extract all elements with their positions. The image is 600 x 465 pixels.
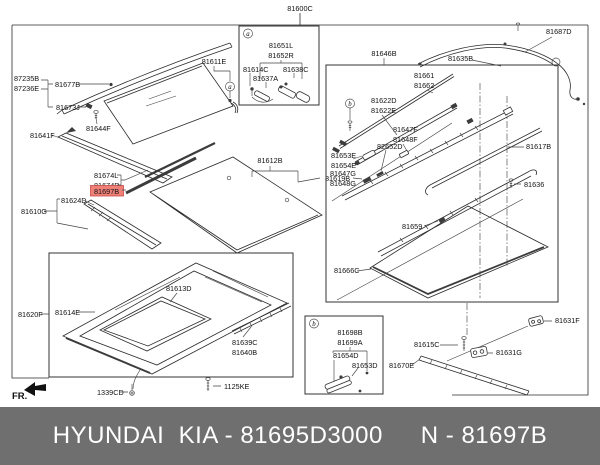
part-label-81670E[interactable]: 81670E — [389, 361, 414, 370]
part-label-81677B[interactable]: 81677B — [55, 80, 80, 89]
parts-catalog-page: 81600C a 81651L 81652R 81614C 81637A 816… — [0, 0, 600, 465]
part-label-81647G[interactable]: 81647G — [330, 169, 356, 178]
part-label-81631G[interactable]: 81631G — [496, 348, 522, 357]
part-label-81653D[interactable]: 81653D — [352, 361, 378, 370]
sunshade-glass-panel — [150, 157, 322, 253]
deflector — [84, 200, 161, 249]
part-label-81613D[interactable]: 81613D — [166, 284, 192, 293]
part-label-81674L[interactable]: 81674L — [94, 171, 118, 180]
part-label-81624D[interactable]: 81624D — [61, 196, 87, 205]
part-label-81647F[interactable]: 81647F — [393, 125, 418, 134]
part-label-81620F[interactable]: 81620F — [18, 310, 43, 319]
part-label-81639C[interactable]: 81639C — [232, 338, 258, 347]
part-label-81600C[interactable]: 81600C — [287, 4, 313, 13]
part-label-81614C[interactable]: 81614C — [243, 65, 269, 74]
inset-marker-b-ref: b — [348, 101, 352, 108]
part-label-81654D[interactable]: 81654D — [333, 351, 359, 360]
inset-box-a: a 81651L 81652R 81614C 81637A 81638C — [239, 26, 319, 105]
part-label-81638C[interactable]: 81638C — [283, 65, 309, 74]
sunshade-blind-panel — [370, 206, 548, 298]
part-label-81651L[interactable]: 81651L — [269, 41, 293, 50]
part-label-81652R[interactable]: 81652R — [268, 51, 294, 60]
part-label-81653E[interactable]: 81653E — [331, 151, 356, 160]
part-label-81699A[interactable]: 81699A — [337, 338, 362, 347]
part-label-81648G[interactable]: 81648G — [330, 179, 356, 188]
fr-label: FR. — [12, 391, 27, 402]
part-label-81673J[interactable]: 81673J — [56, 103, 80, 112]
part-label-81617B[interactable]: 81617B — [526, 142, 551, 151]
part-label-81615C[interactable]: 81615C — [414, 340, 440, 349]
part-label-81631F[interactable]: 81631F — [555, 316, 580, 325]
front-direction: FR. — [12, 382, 46, 402]
rail-strip-81670E — [419, 356, 529, 395]
part-label-81622D[interactable]: 81622D — [371, 96, 397, 105]
part-label-81697B[interactable]: 81697B — [94, 187, 119, 196]
part-label-81659[interactable]: 81659 — [402, 222, 422, 231]
bracket-81631G — [470, 346, 487, 358]
highlighted-part-label[interactable]: 81697B — [91, 186, 124, 197]
slide-parts-drawing — [254, 85, 311, 103]
footer-code-left: HYUNDAI KIA - 81695D3000 — [53, 422, 383, 450]
part-label-81612B[interactable]: 81612B — [257, 156, 282, 165]
part-label-82652D[interactable]: 82652D — [377, 142, 403, 151]
part-label-81610G[interactable]: 81610G — [21, 207, 47, 216]
fastener-81615C — [462, 337, 466, 351]
part-label-81635B[interactable]: 81635B — [448, 54, 473, 63]
footer-bar: HYUNDAI KIA - 81695D3000 N - 81697B — [0, 407, 600, 465]
inset-marker-b: b — [312, 321, 316, 328]
roof-molding — [57, 43, 232, 119]
inset-box-b: b 81698B 81699A 81654D 81653D — [305, 316, 383, 394]
footer-code-right: N - 81697B — [421, 422, 547, 450]
part-label-81641F[interactable]: 81641F — [30, 131, 55, 140]
part-label-81687D[interactable]: 81687D — [546, 27, 572, 36]
inset-marker-a: a — [246, 31, 250, 38]
fasteners-bottom — [130, 378, 211, 396]
part-label-81644F[interactable]: 81644F — [86, 124, 111, 133]
part-label-81640B[interactable]: 81640B — [232, 348, 257, 357]
part-label-81637A[interactable]: 81637A — [253, 74, 278, 83]
part-label-81662[interactable]: 81662 — [414, 81, 434, 90]
part-label-81646B[interactable]: 81646B — [371, 49, 396, 58]
right-assembly-box — [326, 65, 558, 337]
part-label-1125KE[interactable]: 1125KE — [224, 382, 250, 391]
part-label-87236E[interactable]: 87236E — [14, 84, 39, 93]
part-label-81666C[interactable]: 81666C — [334, 266, 360, 275]
part-label-1339CD[interactable]: 1339CD — [97, 388, 124, 397]
part-label-81636[interactable]: 81636 — [524, 180, 544, 189]
part-label-81661[interactable]: 81661 — [414, 71, 434, 80]
part-label-81622E[interactable]: 81622E — [371, 106, 396, 115]
sunroof-glass-panel — [104, 63, 238, 144]
inset-marker-a-ref: a — [228, 84, 232, 91]
part-label-87235B[interactable]: 87235B — [14, 74, 39, 83]
part-label-81611E[interactable]: 81611E — [202, 57, 227, 66]
part-label-81614E[interactable]: 81614E — [55, 308, 80, 317]
part-label-81698B[interactable]: 81698B — [337, 328, 362, 337]
sunroof-parts-diagram: 81600C a 81651L 81652R 81614C 81637A 816… — [0, 0, 600, 407]
frame-assembly-box — [49, 253, 293, 389]
